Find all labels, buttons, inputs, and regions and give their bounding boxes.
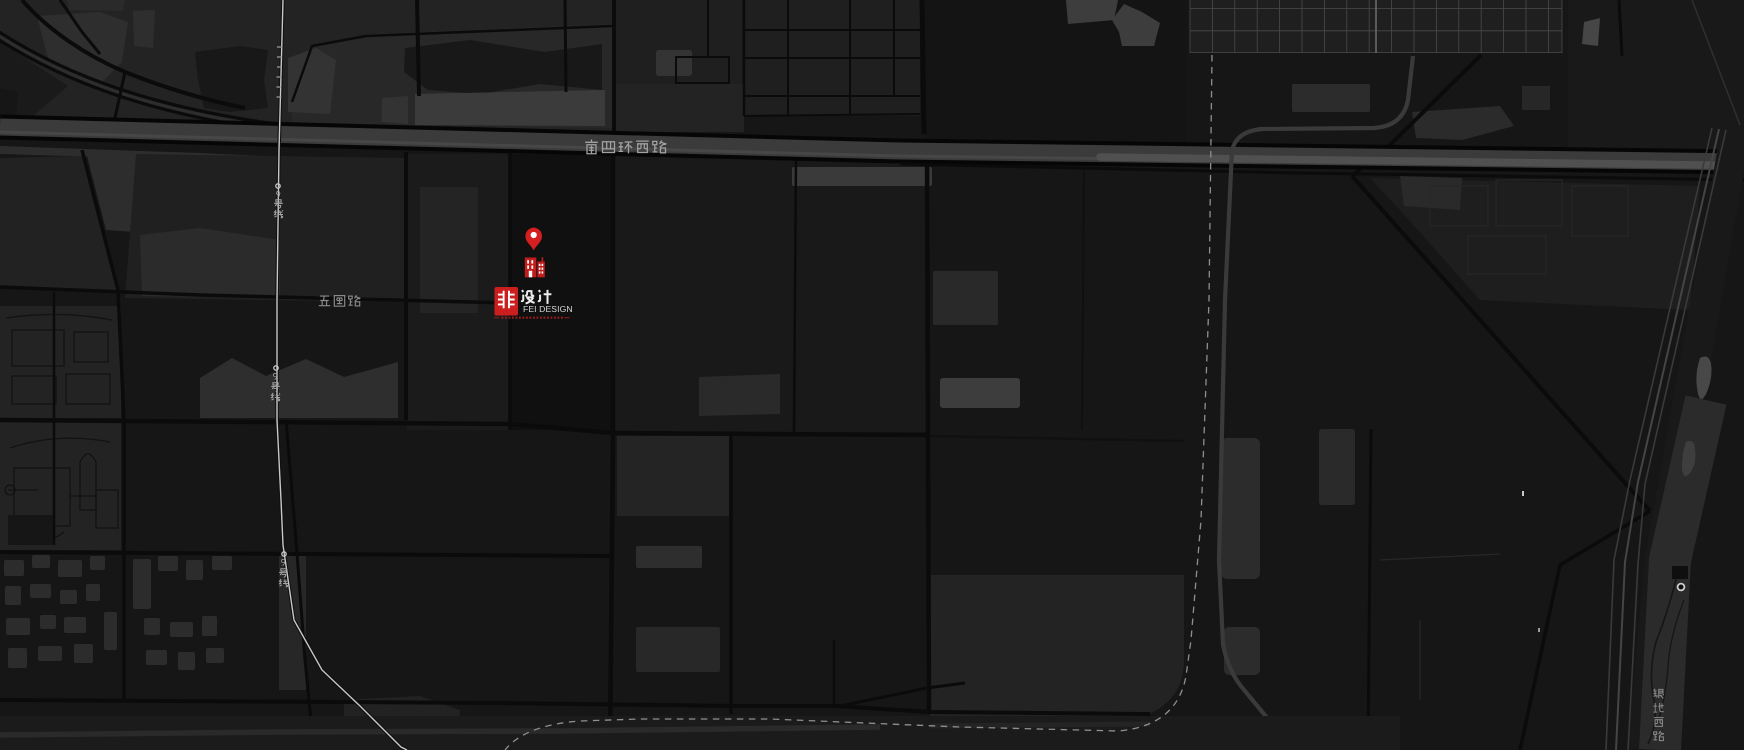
svg-text:FEI DESIGN: FEI DESIGN (523, 304, 573, 314)
